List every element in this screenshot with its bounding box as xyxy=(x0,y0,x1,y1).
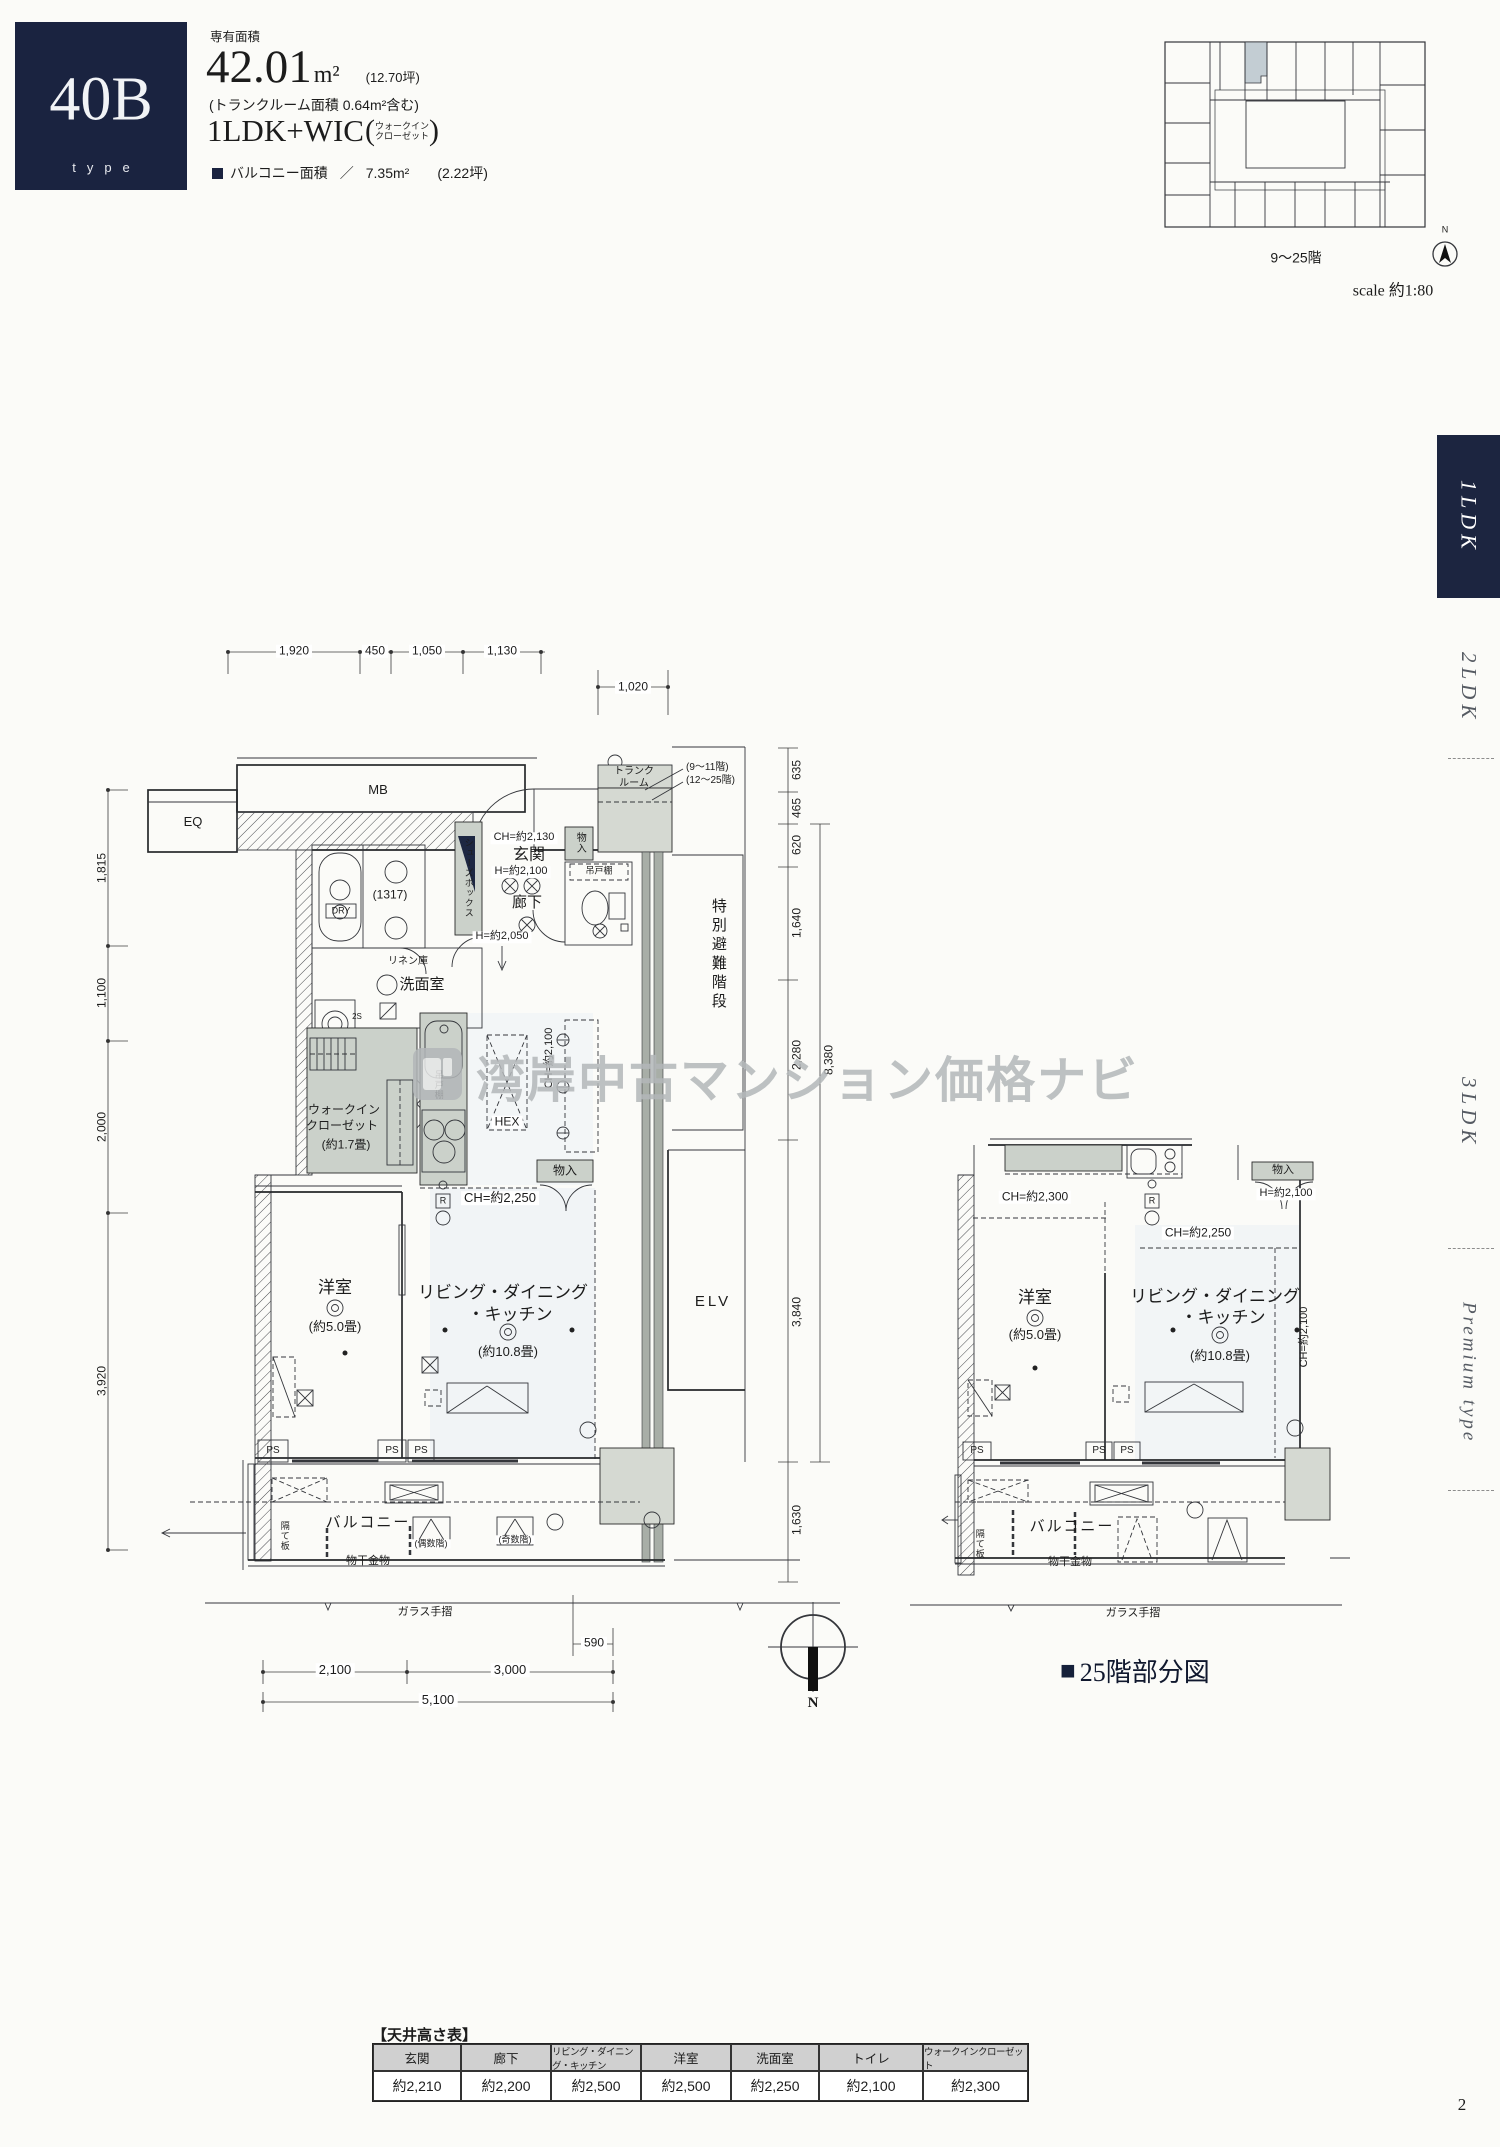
keyplan-drawing xyxy=(1160,35,1430,235)
keyplan-north-label: N xyxy=(1442,225,1449,234)
r-symbol: R xyxy=(440,1196,447,1205)
layout-value: 1LDK+WIC xyxy=(207,113,364,149)
glass-rail-label: ガラス手摺 xyxy=(398,1607,453,1619)
height-entrance: H=約2,100 xyxy=(492,866,551,878)
even-floors-note: (偶数階) xyxy=(412,1539,451,1548)
dim-right-620: 620 xyxy=(791,835,804,855)
sub-room-label-ldk-2: ・キッチン xyxy=(1181,1309,1266,1327)
ceiling-value: 約2,300 xyxy=(923,2071,1028,2101)
dim-left-2000: 2,000 xyxy=(96,1112,109,1142)
tab-divider xyxy=(1448,758,1494,759)
dim-bottom-5100: 5,100 xyxy=(419,1693,458,1707)
sub-ceiling-height-bedroom: CH=約2,300 xyxy=(999,1191,1071,1204)
brochure-page: { "page_number": "2", "header": { "unit_… xyxy=(0,0,1500,2147)
balcony-separator: ／ xyxy=(340,163,354,183)
sub-ps-label: PS xyxy=(1120,1446,1133,1457)
ceiling-table-title: 【天井高さ表】 xyxy=(372,2024,477,2045)
ldk-size: (約10.8畳) xyxy=(478,1345,538,1359)
unit-code: 40B xyxy=(49,67,152,132)
room-label-ldk-2: ・キッチン xyxy=(468,1306,553,1324)
balcony-bullet-icon xyxy=(212,168,223,179)
hanging-cupboard-1: 吊戸棚 xyxy=(585,866,612,875)
room-label-ldk-1: リビング・ダイニング xyxy=(418,1284,588,1302)
keyplan-floors-label: 9〜25階 xyxy=(1270,251,1321,266)
dim-left-3920: 3,920 xyxy=(96,1366,109,1396)
tab-3ldk-label: 3LDK xyxy=(1456,1077,1481,1148)
dim-bottom-2100: 2,100 xyxy=(316,1663,355,1677)
ceiling-value: 約2,210 xyxy=(373,2071,461,2101)
ceiling-col-header: ウォークインクローゼット xyxy=(923,2044,1028,2071)
bedroom-size: (約5.0畳) xyxy=(309,1320,362,1334)
sub-ceiling-height-ldk: CH=約2,250 xyxy=(1162,1227,1234,1240)
sub-height-storage: H=約2,100 xyxy=(1257,1188,1316,1200)
sub-glass-rail-label: ガラス手摺 xyxy=(1106,1608,1161,1620)
ceiling-height-ldk: CH=約2,250 xyxy=(461,1191,539,1205)
drying-fixture-label: 物干金物 xyxy=(346,1556,390,1568)
area-note: (トランクルーム面積 0.64m²含む) xyxy=(209,95,419,115)
sub-partition-label: 隔て板 xyxy=(974,1529,983,1559)
sub-storage-label: 物入 xyxy=(1272,1165,1294,1177)
compass-north-label: N xyxy=(808,1696,819,1712)
layout-sub2: クローゼット xyxy=(375,131,429,141)
sub-plan-caption: ■ 25階部分図 xyxy=(1060,1652,1210,1689)
dim-top-1920: 1,920 xyxy=(276,645,312,658)
sub-ps-label: PS xyxy=(970,1446,983,1457)
sub-room-label-bedroom: 洋室 xyxy=(1018,1289,1052,1307)
room-label-trunk-2: ルーム xyxy=(619,779,649,790)
room-label-balcony: バルコニー xyxy=(326,1515,411,1531)
dim-total-8380: 8,380 xyxy=(823,1045,836,1075)
shoes-box-label: シューズボックス xyxy=(463,838,472,918)
dim-left-1100: 1,100 xyxy=(96,978,109,1008)
sub-bedroom-size: (約5.0畳) xyxy=(1009,1328,1062,1342)
ceiling-height-kitchen: CH=約2,100 xyxy=(544,1028,556,1089)
sub-room-label-balcony: バルコニー xyxy=(1030,1519,1115,1535)
room-label-elevator: ELV xyxy=(695,1294,731,1310)
keyplan-unit-highlight xyxy=(1245,42,1267,83)
height-corridor: H=約2,050 xyxy=(473,931,532,943)
room-label-eq: EQ xyxy=(184,815,203,829)
dry-label: DRY xyxy=(332,906,351,915)
dim-left-1815: 1,815 xyxy=(96,853,109,883)
tab-3ldk: 3LDK xyxy=(1437,1040,1500,1185)
sub-ldk-size: (約10.8畳) xyxy=(1190,1349,1250,1363)
dim-right-635: 635 xyxy=(791,760,804,780)
wic-size: (約1.7畳) xyxy=(322,1139,371,1152)
main-floor-plan-drawing xyxy=(100,640,845,1775)
bath-module-size: (1317) xyxy=(373,889,408,902)
room-label-bedroom: 洋室 xyxy=(318,1279,352,1297)
dim-top-450: 450 xyxy=(362,645,388,658)
tab-2ldk: 2LDK xyxy=(1437,620,1500,755)
tab-1ldk: 1LDK xyxy=(1437,435,1500,598)
odd-floors-note: (奇数階) xyxy=(496,1535,535,1544)
partition-label: 隔て板 xyxy=(279,1521,288,1551)
room-label-trunk-1: トランク xyxy=(614,767,654,778)
ps-label: PS xyxy=(266,1446,279,1457)
hex-label: HEX xyxy=(492,1116,523,1129)
unit-code-sub: type xyxy=(61,161,141,175)
tab-premium: Premium type xyxy=(1437,1258,1500,1488)
ceiling-col-header: トイレ xyxy=(819,2044,923,2071)
balcony-value: 7.35m² xyxy=(366,165,410,181)
washer-code: 2S xyxy=(352,1013,362,1021)
area-unit: m² xyxy=(314,62,340,89)
sub-floor-plan-drawing xyxy=(880,1130,1350,1690)
ceiling-value: 約2,100 xyxy=(819,2071,923,2101)
dim-1020: 1,020 xyxy=(615,681,651,694)
layout-sub1: ウォークイン xyxy=(375,121,429,131)
ceiling-height-entrance: CH=約2,130 xyxy=(491,832,558,844)
watermark-logo xyxy=(413,1048,462,1100)
dim-590: 590 xyxy=(581,1637,607,1650)
room-label-mb: MB xyxy=(368,783,388,797)
ceiling-value: 約2,500 xyxy=(551,2071,641,2101)
ceiling-col-header: 玄関 xyxy=(373,2044,461,2071)
dim-top-1050: 1,050 xyxy=(409,645,445,658)
ps-label: PS xyxy=(385,1446,398,1457)
dim-right-465: 465 xyxy=(791,798,804,818)
dim-right-1630: 1,630 xyxy=(791,1505,804,1535)
ceiling-value: 約2,200 xyxy=(461,2071,551,2101)
ceiling-col-header: 洗面室 xyxy=(731,2044,819,2071)
room-label-wic-2: クローゼット xyxy=(306,1120,378,1133)
tab-2ldk-label: 2LDK xyxy=(1456,652,1481,723)
sub-drying-fixture-label: 物干金物 xyxy=(1048,1557,1092,1569)
dim-top-1130: 1,130 xyxy=(484,645,520,658)
room-label-corridor: 廊下 xyxy=(512,895,542,911)
tab-1ldk-label: 1LDK xyxy=(1456,480,1482,554)
dim-right-3840: 3,840 xyxy=(791,1297,804,1327)
ceiling-value: 約2,500 xyxy=(641,2071,731,2101)
trunk-note-1: (9〜11階) xyxy=(686,763,729,774)
ceiling-height-table: 玄関 廊下 リビング・ダイニング・キッチン 洋室 洗面室 トイレ ウォークインク… xyxy=(372,2043,1029,2102)
tab-divider xyxy=(1448,1248,1494,1249)
room-label-entrance: 玄関 xyxy=(513,848,545,865)
sub-ceiling-height-kitchen: CH=約2,100 xyxy=(1299,1307,1311,1368)
dim-right-2280: 2,280 xyxy=(791,1040,804,1070)
balcony-label: バルコニー面積 xyxy=(230,163,328,183)
sub-ps-label: PS xyxy=(1092,1446,1105,1457)
ps-label: PS xyxy=(414,1446,427,1457)
room-label-wic-1: ウォークイン xyxy=(308,1104,380,1117)
room-label-washroom: 洗面室 xyxy=(399,977,444,993)
ceiling-col-header: 洋室 xyxy=(641,2044,731,2071)
ceiling-value: 約2,250 xyxy=(731,2071,819,2101)
storage-label-2: 物入 xyxy=(553,1165,577,1178)
caption-marker: ■ xyxy=(1060,1656,1076,1686)
area-tsubo: (12.70坪) xyxy=(366,67,420,86)
sub-r-symbol: R xyxy=(1149,1196,1156,1205)
area-value: 42.01 xyxy=(206,40,312,94)
trunk-note-2: (12〜25階) xyxy=(686,776,735,787)
page-number: 2 xyxy=(1458,2096,1467,2114)
room-label-evac-stairs: 特別避難階段 xyxy=(710,898,726,1012)
balcony-tsubo: (2.22坪) xyxy=(437,163,488,183)
dim-bottom-3000: 3,000 xyxy=(491,1663,530,1677)
dim-right-1640: 1,640 xyxy=(791,908,804,938)
unit-type-badge: 40B type xyxy=(15,22,187,190)
tab-divider xyxy=(1448,1490,1494,1491)
caption-text: 25階部分図 xyxy=(1080,1652,1210,1689)
linen-label: リネン庫 xyxy=(388,957,428,968)
ceiling-col-header: リビング・ダイニング・キッチン xyxy=(551,2044,641,2071)
scale-label: scale 約1:80 xyxy=(1353,284,1433,301)
tab-premium-label: Premium type xyxy=(1458,1302,1480,1443)
sub-room-label-ldk-1: リビング・ダイニング xyxy=(1130,1288,1300,1306)
ceiling-col-header: 廊下 xyxy=(461,2044,551,2071)
storage-label-1: 物入 xyxy=(574,832,585,854)
